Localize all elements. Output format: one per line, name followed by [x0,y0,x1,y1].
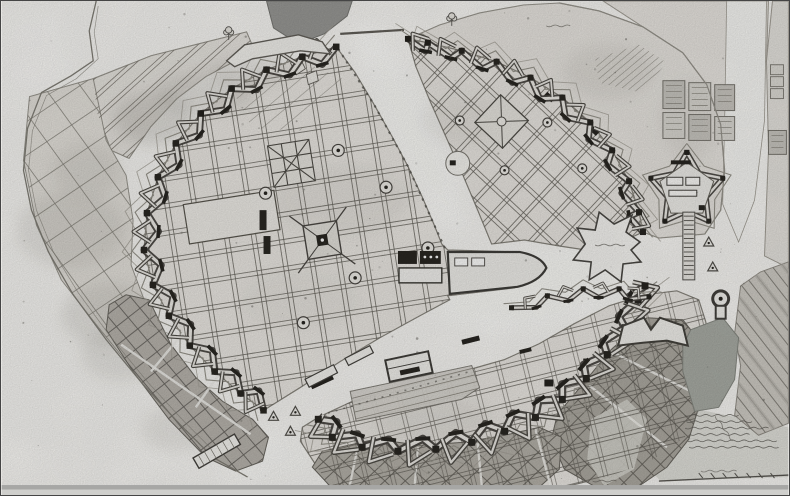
scan-frame [2,485,789,495]
fortification-map-svg [1,1,789,495]
map-figure [0,0,790,496]
paper-texture [2,1,789,495]
